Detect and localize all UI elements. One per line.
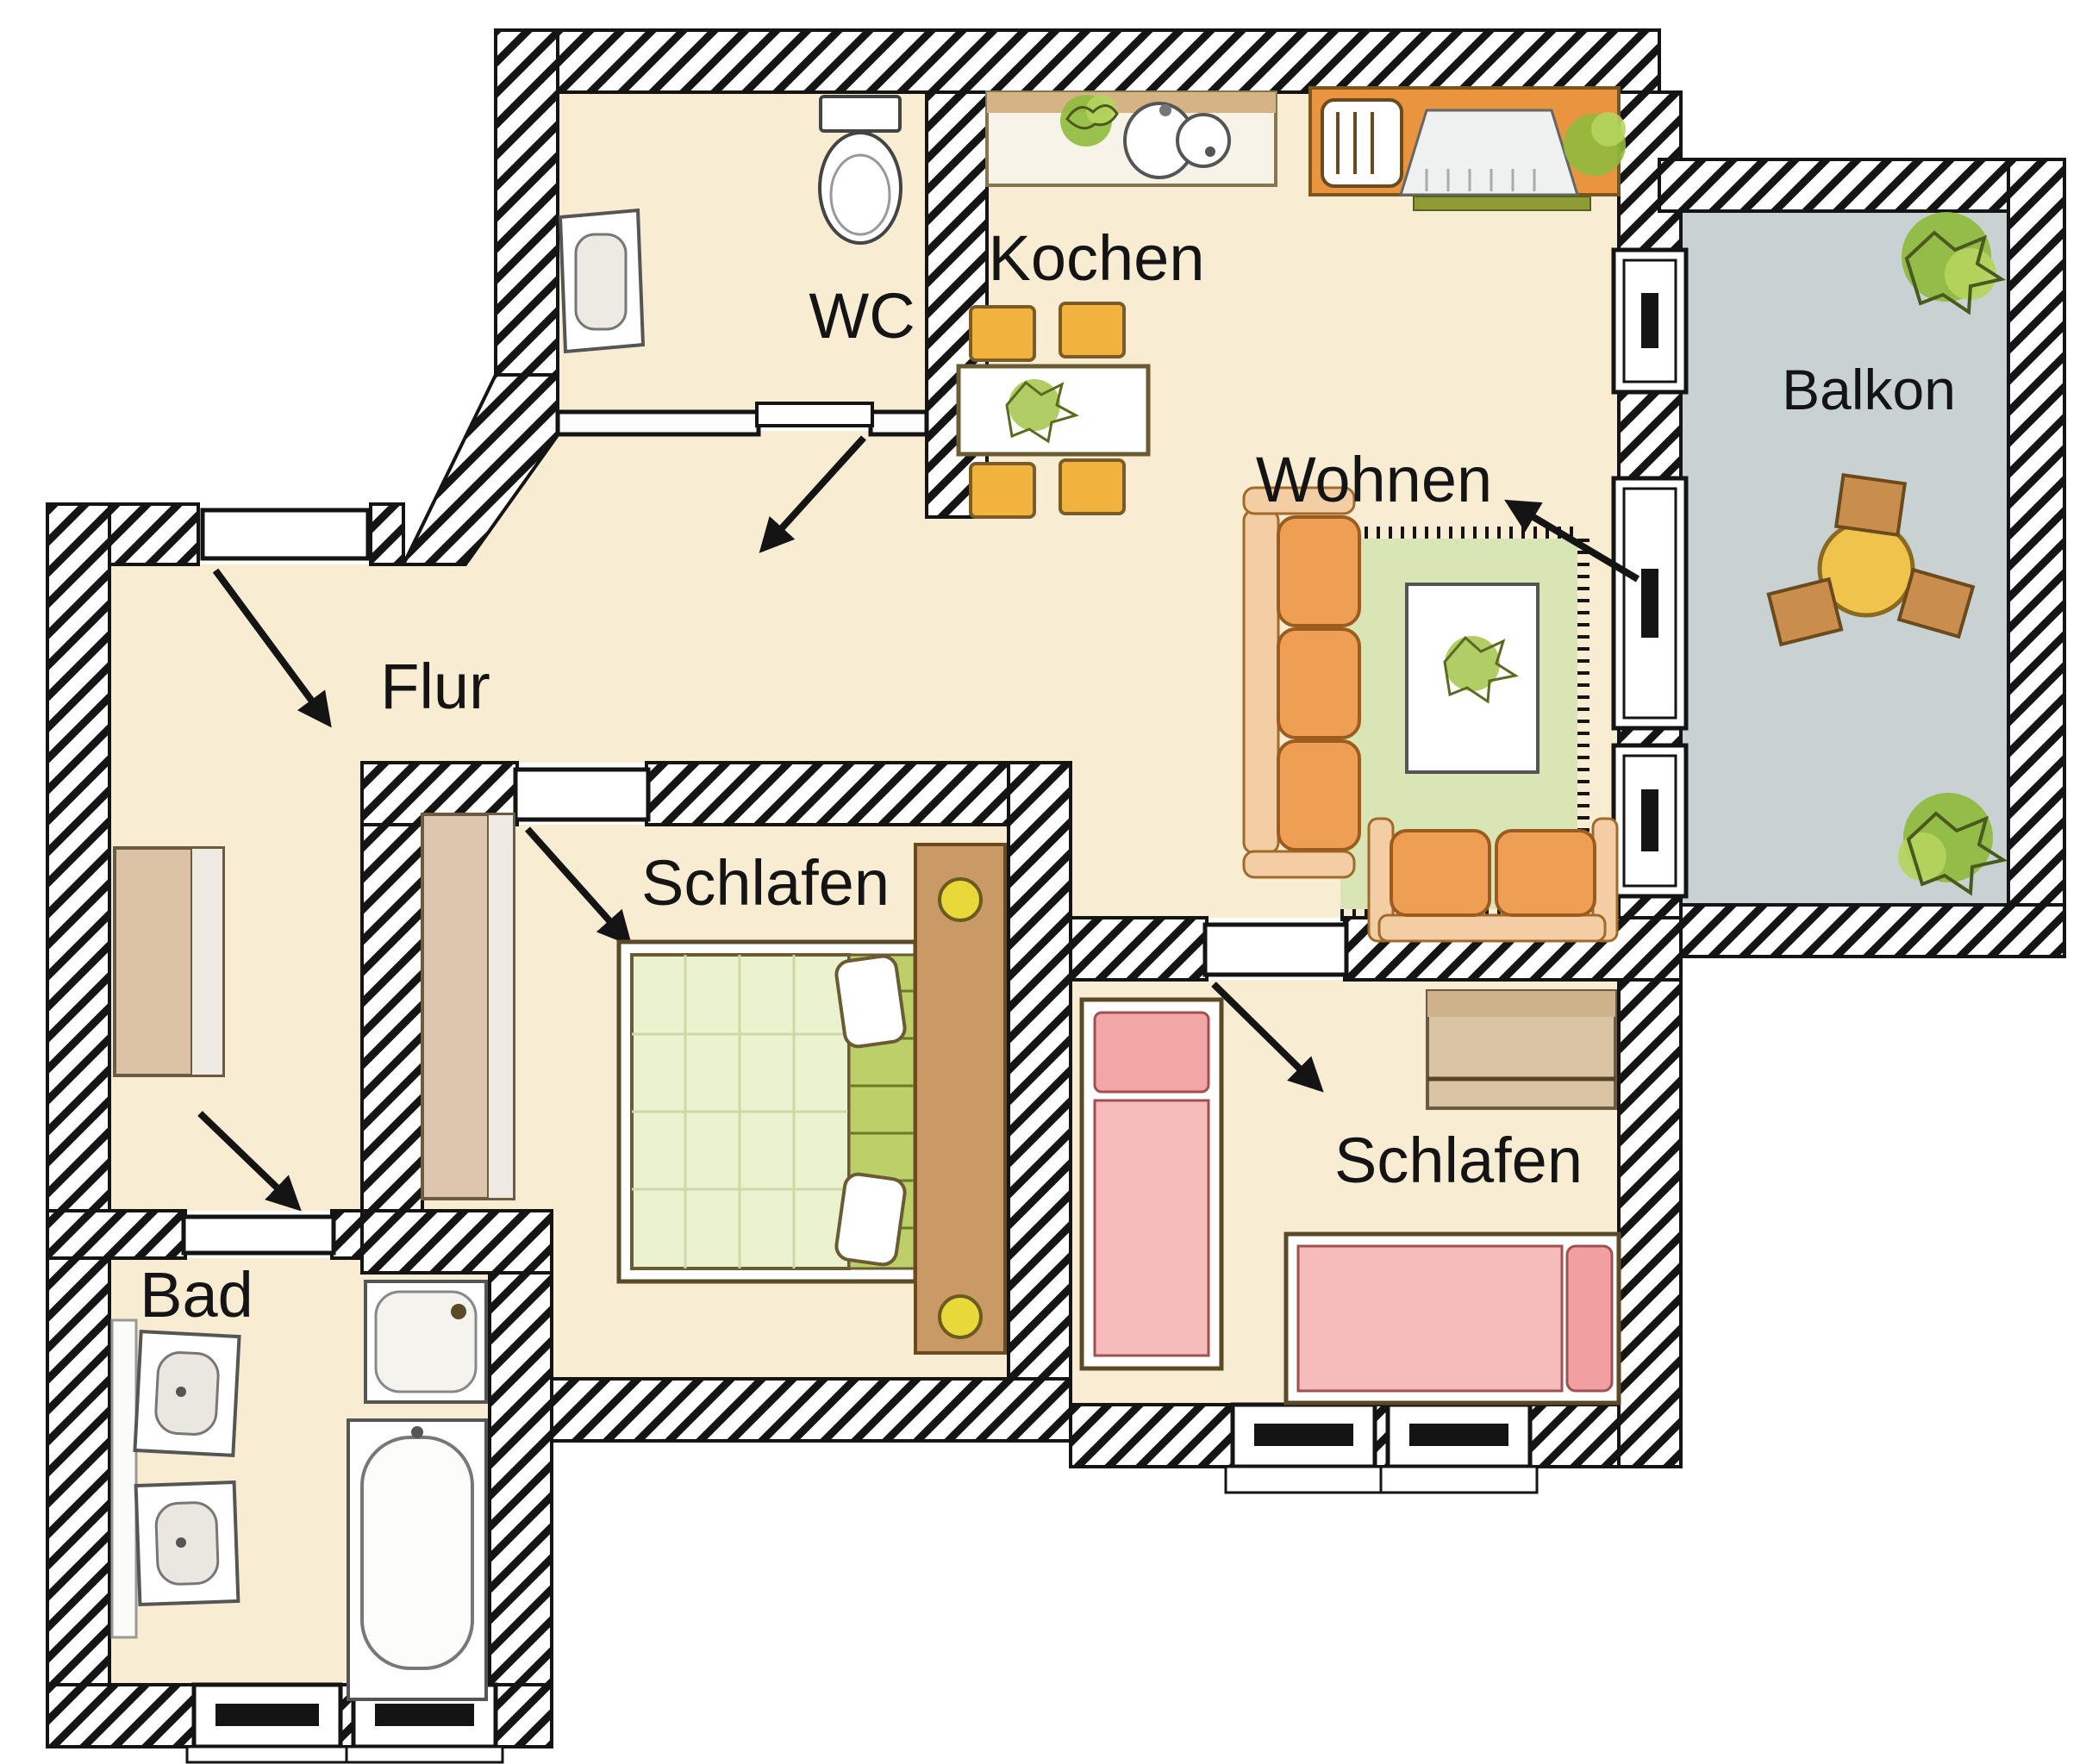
wall-bath-right xyxy=(490,1273,552,1702)
bath-sink-lower-basin xyxy=(155,1502,218,1585)
wall-wc-left xyxy=(496,30,558,375)
wall-living-right-c xyxy=(1619,728,1681,745)
wall-bedroomR-right xyxy=(1619,980,1681,1467)
dining-chair-1 xyxy=(971,307,1034,360)
toilet-tank xyxy=(821,97,900,131)
wall-entrance-right xyxy=(371,504,403,564)
bath-window-right-sill xyxy=(347,1747,503,1762)
wall-left-outer xyxy=(47,504,109,1702)
room-label-schlafen-left: Schlafen xyxy=(641,847,890,919)
sofa-large-cushion-2 xyxy=(1278,629,1359,738)
bath-mirror xyxy=(112,1320,136,1637)
bath-window-left-sash xyxy=(215,1704,319,1726)
single-bed-vertical-pillow xyxy=(1095,1013,1209,1092)
balcony-window-lower-sash xyxy=(1641,789,1658,851)
double-bed-pillow-bottom xyxy=(834,1173,906,1267)
sofa-small-cushion-1 xyxy=(1391,831,1490,915)
room-label-wohnen: Wohnen xyxy=(1256,444,1492,515)
bath-sink-upper-basin xyxy=(155,1351,220,1436)
kitchen-sink-bowl-right xyxy=(1177,115,1229,166)
wall-wc-bottom-b xyxy=(871,412,927,434)
room-label-flur: Flur xyxy=(380,651,490,722)
wall-shower-cap xyxy=(362,1211,552,1273)
entrance-door-panel xyxy=(203,510,368,558)
wall-bedroomL-bottom xyxy=(552,1379,1071,1441)
bedroomR-window-left-sill xyxy=(1226,1467,1382,1493)
single-bed-vertical-duvet xyxy=(1095,1100,1209,1356)
sofa-small-cushion-2 xyxy=(1496,831,1595,915)
balcony-plant-bottom-hi xyxy=(1898,832,1946,881)
bedroomR-window-right-sash xyxy=(1409,1424,1508,1446)
balcony-stool-top xyxy=(1836,475,1905,534)
bathtub-faucet xyxy=(411,1426,423,1438)
wall-bath-bottom-a xyxy=(47,1685,194,1747)
wall-bath-bottom-c xyxy=(496,1685,552,1747)
wall-bedroom-divider xyxy=(1009,763,1071,1441)
kitchen-faucet xyxy=(1159,104,1171,116)
wall-balcony-top xyxy=(1659,159,2064,211)
room-label-kochen: Kochen xyxy=(989,222,1205,294)
bathtub-inner xyxy=(362,1437,472,1668)
dining-chair-4 xyxy=(1060,460,1124,514)
room-label-wc: WC xyxy=(809,280,915,352)
wc-door-panel xyxy=(757,403,872,426)
double-bed-pillow-top xyxy=(834,955,906,1049)
dining-chair-3 xyxy=(971,464,1034,517)
sofa-large-cushion-1 xyxy=(1278,517,1359,626)
bath-window-left-sill xyxy=(187,1747,347,1762)
bath-window-right-sash xyxy=(375,1704,474,1726)
kitchen-counter-edge xyxy=(987,92,1276,113)
wall-top xyxy=(496,30,1659,92)
stove-shelf-bar xyxy=(1414,196,1590,210)
kitchen-sink-drain xyxy=(1205,146,1215,157)
stove-burner-box xyxy=(1322,100,1402,186)
sofa-large-cushion-3 xyxy=(1278,741,1359,850)
wall-bath-top-a xyxy=(47,1211,185,1258)
wall-balcony-bottom xyxy=(1681,905,2064,957)
bedroomR-window-right-sill xyxy=(1381,1467,1537,1493)
bath-door-panel xyxy=(184,1217,334,1253)
dining-chair-2 xyxy=(1060,303,1124,357)
floor-plan: KochenWCFlurWohnenBalkonSchlafenSchlafen… xyxy=(0,0,2086,1764)
wall-bedroomR-bottom-a xyxy=(1071,1405,1233,1467)
wall-wc-bottom-a xyxy=(558,412,759,434)
shower-drain xyxy=(451,1304,466,1319)
bedroomR-dresser-top xyxy=(1427,991,1615,1017)
headboard-lamp-top xyxy=(940,879,981,920)
wc-sink-basin xyxy=(576,234,626,329)
floor-plan-svg: KochenWCFlurWohnenBalkonSchlafenSchlafen… xyxy=(0,0,2086,1764)
hall-wardrobe-strip xyxy=(191,848,223,1075)
bedroomR-window-left-sash xyxy=(1254,1424,1353,1446)
single-bed-horizontal-duvet xyxy=(1298,1246,1562,1391)
room-label-balkon: Balkon xyxy=(1782,358,1956,421)
bedroomL-door-panel xyxy=(515,770,648,820)
sofa-small-back xyxy=(1379,915,1605,941)
room-label-schlafen-right: Schlafen xyxy=(1334,1125,1583,1196)
bedroomL-closet-strip xyxy=(488,814,514,1199)
balcony-door-window-sash xyxy=(1641,569,1658,638)
stove-plant-hi xyxy=(1591,112,1626,146)
bedroomR-door-panel xyxy=(1205,925,1346,975)
wall-living-right-b xyxy=(1619,392,1681,478)
wall-bedroomR-top-a xyxy=(1071,918,1207,980)
sofa-large-back xyxy=(1244,510,1278,853)
wall-bedroomL-left xyxy=(362,825,422,1211)
room-label-bad: Bad xyxy=(140,1259,253,1331)
sofa-large-arm-bottom xyxy=(1244,851,1354,877)
balcony-window-upper-sash xyxy=(1641,293,1658,348)
bath-sink-upper-drain xyxy=(176,1387,186,1397)
bath-sink-lower-drain xyxy=(176,1537,186,1548)
headboard-lamp-bottom xyxy=(940,1296,981,1337)
wall-bath-top-b xyxy=(332,1211,362,1258)
single-bed-horizontal-pillow xyxy=(1567,1246,1612,1391)
wall-balcony-right xyxy=(2008,159,2064,957)
